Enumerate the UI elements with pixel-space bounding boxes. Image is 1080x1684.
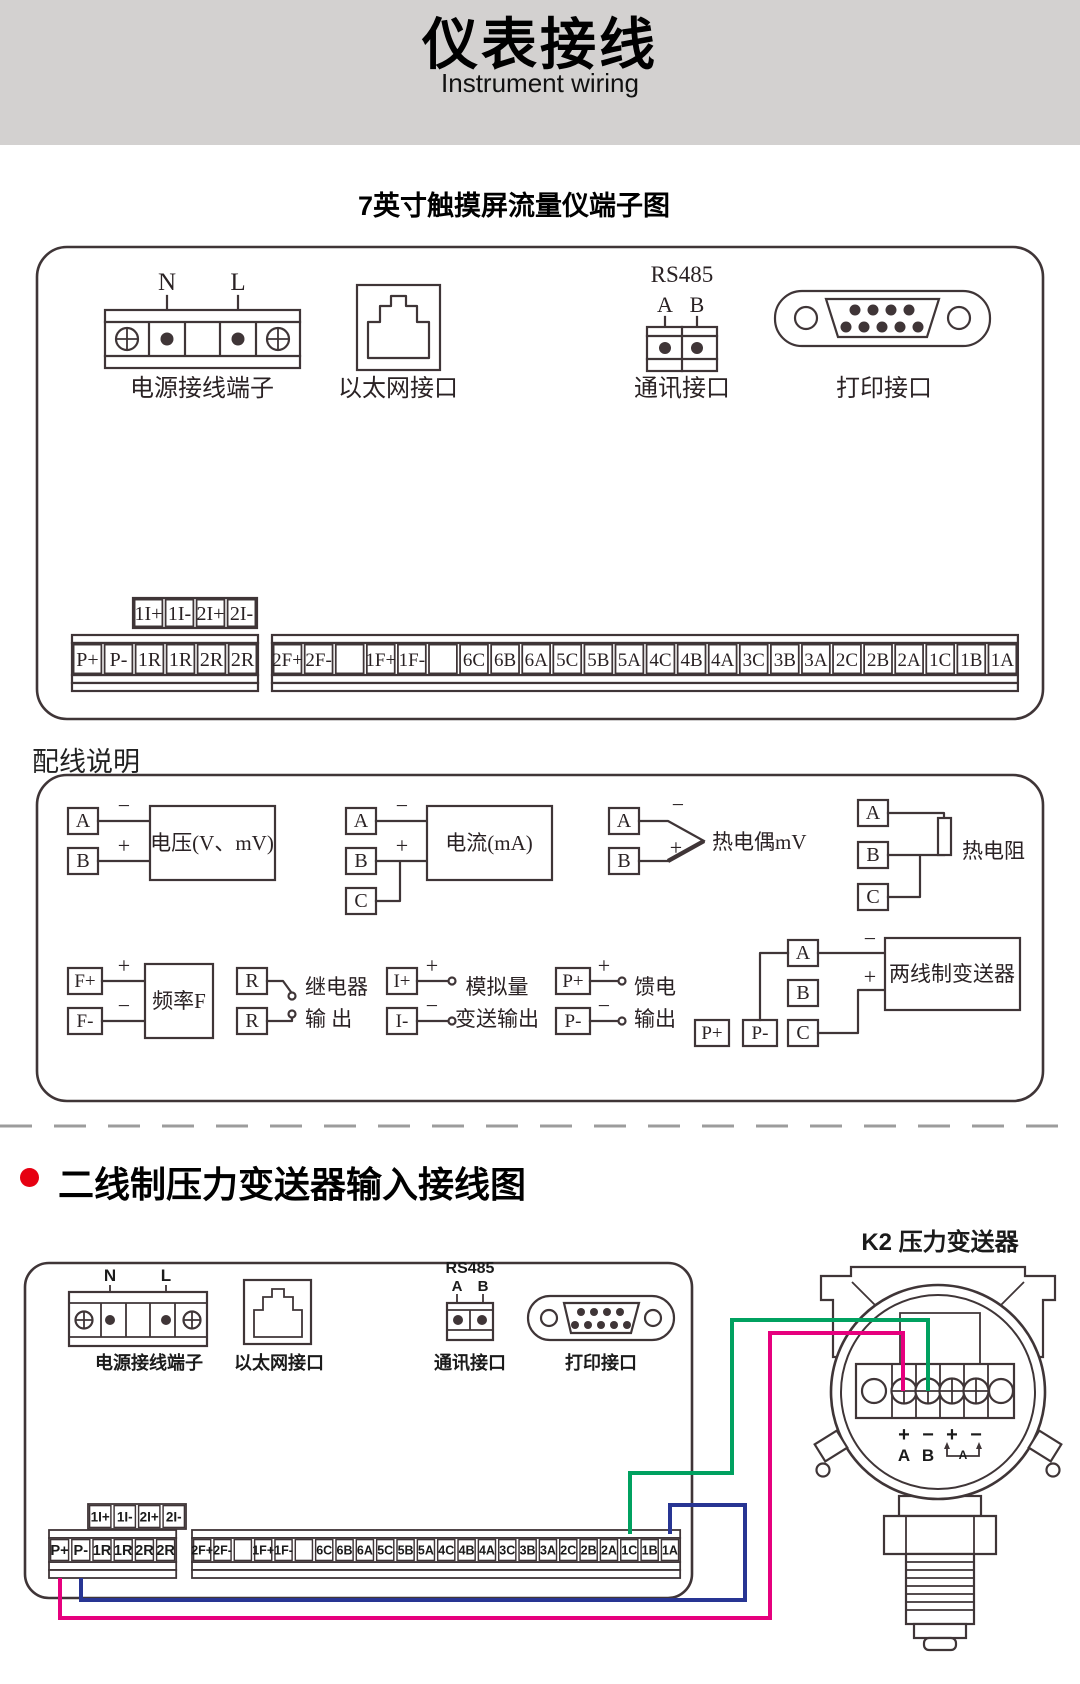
terminal-label: 2C (836, 650, 858, 671)
hex-nut (884, 1516, 996, 1554)
polarity-sign: + (118, 953, 130, 978)
contact-dot (289, 993, 296, 1000)
wiring-diagram: N L 电源接线端子 以太网接口 RS485 (0, 0, 1080, 1684)
wiring-notes-panel: A B − + 电压(V、mV) A B C − + (37, 775, 1043, 1101)
terminal-label: 1I+ (135, 603, 163, 625)
terminal-label: P+ (562, 971, 583, 992)
terminal-label: C (354, 890, 367, 912)
polarity-sign: − (970, 1424, 982, 1446)
terminal-label: 4B (680, 650, 702, 671)
terminal-label: 1R (114, 1543, 133, 1559)
ethernet-label: 以太网接口 (338, 375, 458, 402)
diagram-current: A B C − + 电流(mA) (346, 793, 552, 914)
terminal-cell (234, 1540, 251, 1561)
terminal-label: 6B (337, 1544, 353, 1558)
diagram-voltage: A B − + 电压(V、mV) (68, 793, 275, 880)
terminal-label: 6C (463, 650, 485, 671)
terminal-dot (453, 1315, 463, 1325)
terminal-label: P+ (701, 1023, 722, 1044)
terminal-label: 4C (649, 650, 671, 671)
terminal-label: 2R (231, 649, 255, 671)
k2-pressure-transmitter: K2 压力变送器 + − (815, 1228, 1062, 1650)
terminal-label: 1C (929, 650, 951, 671)
terminal-label: 1C (621, 1544, 637, 1558)
main-terminal-strip-right: 2F+2F-1F+1F-6C6B6A5C5B5A4C4B4A3C3B3A2C2B… (191, 1530, 680, 1578)
device-label: 两线制变送器 (889, 962, 1015, 986)
polarity-sign: − (118, 993, 130, 1018)
pin-label-l: L (230, 269, 245, 296)
ethernet-connector: 以太网接口 (338, 285, 458, 402)
terminal-label: 1F- (399, 650, 425, 671)
terminal-rail (72, 635, 258, 643)
terminal-label: 2B (867, 650, 889, 671)
terminal-label: B (76, 850, 89, 872)
terminal-label: 1A (662, 1544, 678, 1558)
diagram-analog-output: I+ I- + − 模拟量 变送输出 (387, 953, 539, 1034)
instrument-panel-bottom: N L 电源接线端子 以太网接口 RS485 (25, 1260, 692, 1598)
terminal-label: 4B (459, 1544, 475, 1558)
polarity-sign: − (426, 993, 438, 1018)
terminal-label: P+ (76, 649, 98, 671)
page: 仪表接线 Instrument wiring 7英寸触摸屏流量仪端子图 配线说明… (0, 0, 1080, 1684)
terminal-rail (272, 675, 1018, 683)
terminal-label: 5B (398, 1544, 414, 1558)
print-connector: 打印接口 (775, 291, 990, 402)
terminal-label: 1F+ (365, 650, 396, 671)
terminal-rail (272, 683, 1018, 691)
terminal-label: B (354, 850, 367, 872)
terminal-label: 4C (438, 1544, 454, 1558)
terminal-label: R (245, 970, 259, 992)
device-label: 热电偶mV (712, 830, 807, 854)
terminal-rail (72, 675, 258, 683)
power-label: 电源接线端子 (130, 375, 274, 402)
device-label: 热电阻 (962, 839, 1025, 863)
contact-dot (289, 1011, 296, 1018)
terminal-label: 1R (169, 649, 193, 671)
pin-label-b: B (690, 292, 705, 317)
device-label: 频率F (152, 989, 206, 1013)
stub-tip (914, 1624, 966, 1638)
polarity-sign: − (922, 1424, 934, 1446)
terminal-label: P- (110, 649, 128, 671)
mount-hole (948, 307, 970, 329)
comm-label: 通讯接口 (434, 1352, 506, 1373)
terminal-label: 6C (316, 1544, 332, 1558)
terminal-label: 2I- (230, 603, 253, 625)
polarity-sign: + (946, 1424, 958, 1446)
terminal-label: 5A (618, 650, 642, 671)
pin-label-l: L (161, 1266, 171, 1285)
mount-hole (862, 1379, 886, 1403)
thread-lines (906, 1562, 974, 1610)
terminal-label: 3A (540, 1544, 556, 1558)
aux-terminal-strip: 1I+1I-2I+2I- (88, 1504, 186, 1529)
terminal-label: 1B (642, 1544, 658, 1558)
terminal-label: 3B (520, 1544, 536, 1558)
terminal-cell (429, 645, 457, 674)
device-label: 模拟量 (466, 975, 529, 999)
terminal-label: 1F+ (252, 1544, 274, 1558)
terminal-label: 1I- (168, 603, 191, 625)
pin-label-b: B (478, 1278, 489, 1295)
terminal-label: 1I+ (91, 1509, 110, 1524)
terminal-label: 3A (804, 650, 828, 671)
terminal-label: 4A (711, 650, 735, 671)
diagram-rtd: A B C 热电阻 (858, 800, 1025, 910)
device-label: 输 出 (305, 1007, 352, 1031)
diagram-two-wire-transmitter: A B C P+ P- − + 两线制变送器 (695, 926, 1020, 1046)
main-terminal-strip-left: P+P-1R1R2R2R (72, 635, 258, 691)
terminal-label: 6B (494, 650, 516, 671)
power-terminal-connector: N L 电源接线端子 (69, 1266, 207, 1373)
terminal-label: 1I- (117, 1509, 133, 1524)
rs485-label: RS485 (651, 262, 714, 287)
stub-nipple (924, 1638, 956, 1650)
terminal-label: A (866, 802, 881, 824)
ammeter-label: A (959, 1448, 968, 1462)
terminal-label: 5C (556, 650, 578, 671)
mount-hole (645, 1310, 661, 1326)
transmitter-title: K2 压力变送器 (861, 1228, 1019, 1256)
comm-connector: RS485 A B 通讯接口 (634, 262, 730, 402)
terminal-rail (49, 1530, 176, 1538)
terminal-label: P- (74, 1543, 89, 1559)
diagram-frequency: F+ F- + − 频率F (68, 953, 213, 1038)
main-terminal-strip-left: P+P-1R1R2R2R (49, 1530, 176, 1578)
terminal-label: 2F+ (191, 1544, 213, 1558)
terminal-label: 1R (93, 1543, 112, 1559)
print-label: 打印接口 (565, 1352, 637, 1373)
terminal-label: 2B (581, 1544, 597, 1558)
terminal-label: B (796, 982, 809, 1004)
terminal-label: B (617, 850, 630, 872)
print-connector: 打印接口 (528, 1296, 674, 1373)
pin-label-n: N (104, 1266, 116, 1285)
polarity-sign: − (598, 993, 610, 1018)
terminal-label: 1F- (274, 1544, 293, 1558)
contact-dot (619, 1018, 626, 1025)
device-label: 变送输出 (455, 1007, 539, 1031)
device-label: 电压(V、mV) (150, 831, 274, 855)
diagram-relay: R R 继电器 输 出 (237, 968, 368, 1034)
aux-terminal-strip: 1I+1I-2I+2I- (133, 598, 257, 628)
polarity-sign: + (864, 964, 876, 989)
terminal-label: A (617, 810, 632, 832)
terminal-label: 2C (560, 1544, 576, 1558)
polarity-sign: + (598, 953, 610, 978)
terminal-label: P- (752, 1023, 769, 1044)
terminal-label: 2A (898, 650, 922, 671)
polarity-sign: − (118, 793, 130, 818)
terminal-dot (691, 342, 703, 354)
terminal-label: 5A (418, 1544, 434, 1558)
polarity-sign: + (898, 1424, 910, 1446)
terminal-rail (192, 1570, 680, 1578)
terminal-dot (232, 333, 245, 346)
terminal-label: 2R (156, 1543, 175, 1559)
terminal-label: 2F- (213, 1544, 232, 1558)
terminal-label: 1A (991, 650, 1015, 671)
terminal-rail (72, 683, 258, 691)
terminal-label: 3B (774, 650, 796, 671)
terminal-label: 2A (601, 1544, 617, 1558)
ethernet-label: 以太网接口 (234, 1352, 324, 1373)
comm-label: 通讯接口 (634, 375, 730, 402)
terminal-label: 2I+ (197, 603, 225, 625)
terminal-label: 4A (479, 1544, 495, 1558)
terminal-label: 2F- (305, 650, 331, 671)
ethernet-connector: 以太网接口 (234, 1280, 324, 1373)
terminal-dot (105, 1315, 115, 1325)
mount-hole (989, 1379, 1013, 1403)
terminal-rail (49, 1562, 176, 1570)
mount-hole (795, 307, 817, 329)
terminal-label: R (245, 1010, 259, 1032)
terminal-dot (161, 333, 174, 346)
pin-label-a: A (452, 1278, 463, 1295)
terminal-label: 2I+ (140, 1509, 159, 1524)
power-label: 电源接线端子 (95, 1352, 203, 1373)
terminal-label: A (898, 1446, 910, 1465)
terminal-rail (192, 1562, 680, 1570)
contact-dot (619, 978, 626, 985)
terminal-label: 1R (138, 649, 162, 671)
terminal-cell (336, 645, 364, 674)
print-label: 打印接口 (836, 375, 932, 402)
terminal-rail (192, 1530, 680, 1538)
terminal-label: B (866, 844, 879, 866)
rs485-label: RS485 (446, 1260, 495, 1277)
terminal-label: A (354, 810, 369, 832)
instrument-panel-top: N L 电源接线端子 以太网接口 RS485 (37, 247, 1043, 719)
polarity-sign: + (118, 833, 130, 858)
terminal-label: P- (565, 1011, 582, 1032)
polarity-sign: − (396, 793, 408, 818)
terminal-label: 5B (587, 650, 609, 671)
terminal-label: 3C (743, 650, 765, 671)
polarity-sign: + (670, 835, 682, 860)
terminal-label: B (922, 1446, 934, 1465)
device-label: 继电器 (305, 975, 368, 999)
polarity-sign: + (426, 953, 438, 978)
terminal-label: A (796, 942, 811, 964)
pin-label-a: A (657, 292, 673, 317)
polarity-sign: − (672, 792, 684, 817)
terminal-label: 1B (960, 650, 982, 671)
terminal-label: 2R (200, 649, 224, 671)
power-terminal-connector: N L 电源接线端子 (105, 269, 300, 402)
device-label: 电流(mA) (445, 831, 533, 855)
device-label: 馈电 (634, 975, 676, 999)
terminal-label: C (866, 886, 879, 908)
terminal-label: 2F+ (272, 650, 303, 671)
device-label: 输出 (634, 1007, 676, 1031)
terminal-label: C (796, 1022, 809, 1044)
diagram-thermocouple: A B − + 热电偶mV (609, 792, 807, 874)
terminal-label: 6A (525, 650, 549, 671)
terminal-dot (161, 1315, 171, 1325)
terminal-label: P+ (51, 1543, 69, 1559)
terminal-label: F+ (74, 971, 95, 992)
lead-lines (888, 813, 944, 897)
pin-label-n: N (158, 269, 176, 296)
diagram-feed-output: P+ P- + − 馈电 输出 (556, 953, 676, 1034)
terminal-label: 2I- (166, 1509, 182, 1524)
main-terminal-strip-right: 2F+2F-1F+1F-6C6B6A5C5B5A4C4B4A3C3B3A2C2B… (272, 635, 1018, 691)
mount-hole (541, 1310, 557, 1326)
contact-dot (449, 978, 456, 985)
polarity-sign: − (864, 926, 876, 951)
terminal-label: 6A (357, 1544, 373, 1558)
terminal-label: 2R (135, 1543, 154, 1559)
terminal-label: A (76, 810, 91, 832)
terminal-label: F- (77, 1011, 94, 1032)
terminal-label: I+ (393, 971, 410, 992)
threaded-stub (906, 1554, 974, 1624)
resistor-icon (938, 818, 951, 855)
terminal-label: 3C (499, 1544, 515, 1558)
terminal-label: I- (396, 1011, 409, 1032)
terminal-rail (49, 1570, 176, 1578)
polarity-sign: + (396, 833, 408, 858)
terminal-dot (477, 1315, 487, 1325)
terminal-label: 5C (377, 1544, 393, 1558)
terminal-rail (272, 635, 1018, 643)
terminal-dot (659, 342, 671, 354)
comm-connector: RS485 A B 通讯接口 (434, 1260, 506, 1373)
terminal-cell (295, 1540, 312, 1561)
